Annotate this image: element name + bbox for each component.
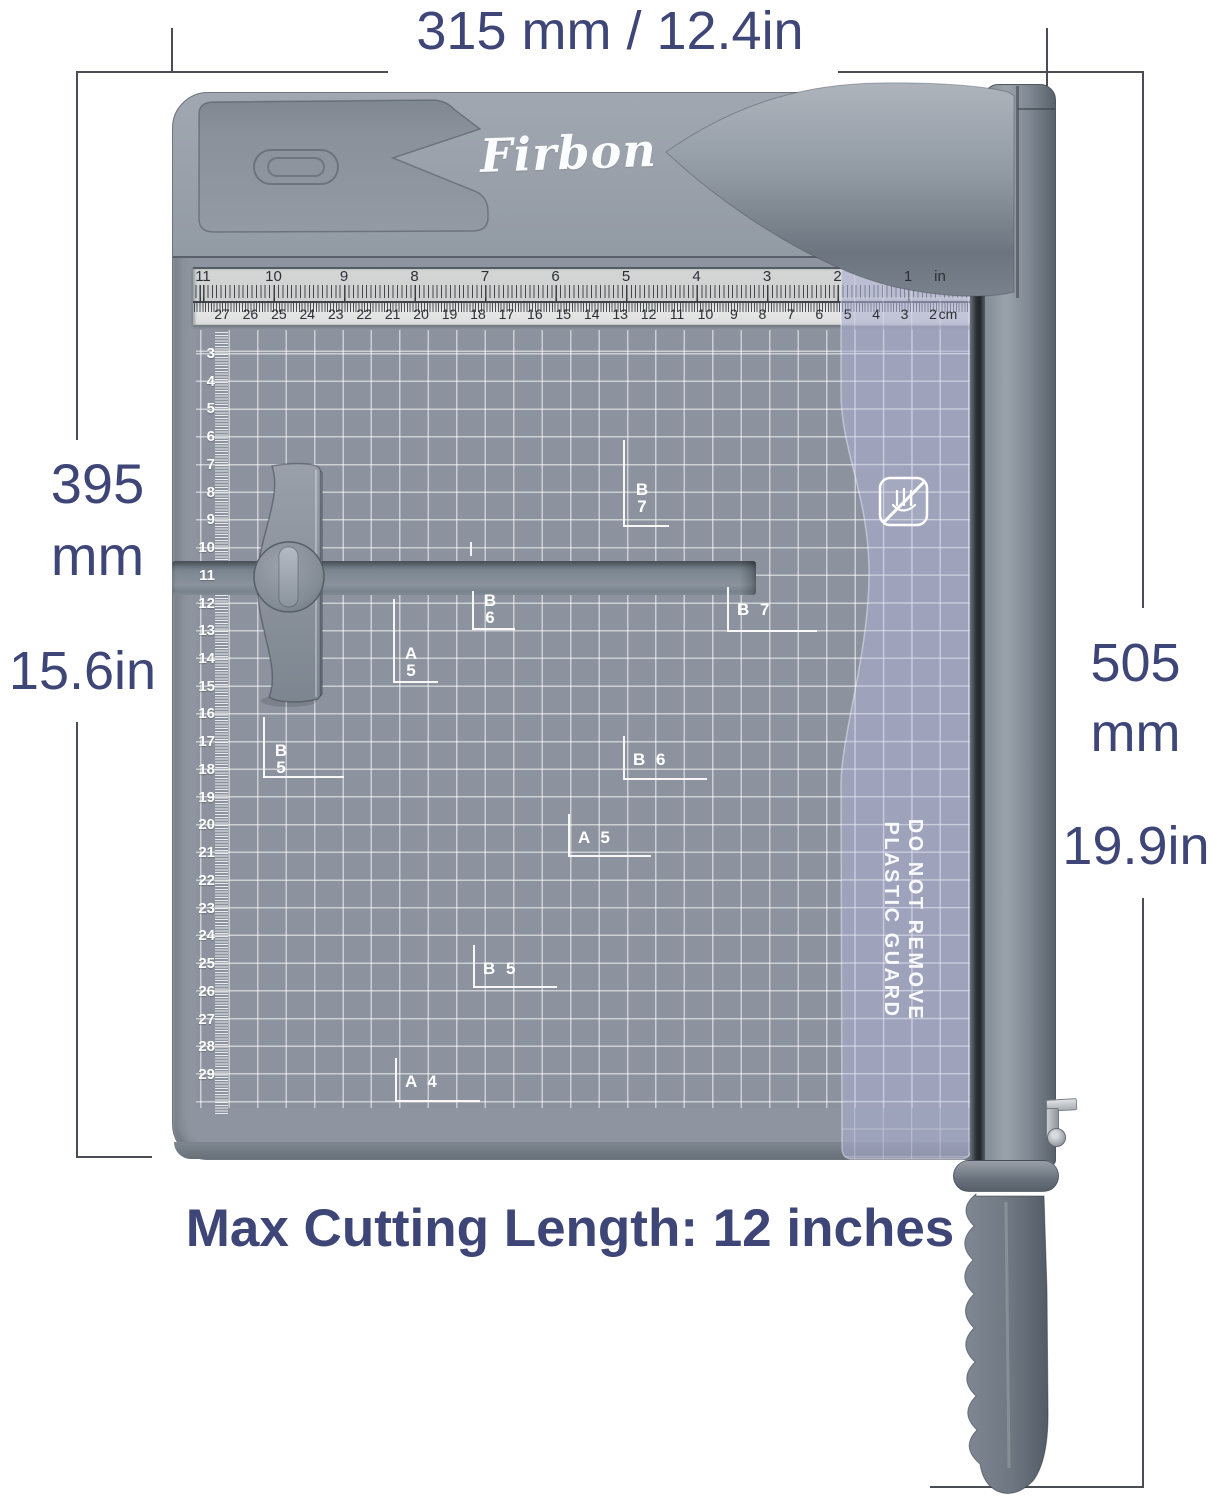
- ruler-inch-unit: in: [929, 268, 951, 285]
- side-ruler-number: 13: [193, 622, 215, 639]
- paper-mark-hline: [568, 855, 651, 857]
- paper-mark-vline: [472, 591, 474, 630]
- side-ruler-number: 8: [193, 484, 215, 501]
- paper-mark-hline: [623, 778, 707, 780]
- ruler-cm-number: 4: [865, 306, 887, 322]
- paper-size-label-text: B 6: [633, 751, 668, 768]
- side-ruler-number: 19: [193, 789, 215, 806]
- paper-size-label-b5-mid: B 5: [483, 960, 518, 977]
- paper-size-label-a5-mid: A 5: [578, 829, 613, 846]
- paper-size-label-text: B: [631, 481, 653, 498]
- ruler-inch-number: 9: [333, 268, 355, 285]
- side-ruler-number: 15: [193, 678, 215, 695]
- guard-warning-line-1: DO NOT REMOVE: [903, 685, 927, 1155]
- ruler-cm-number: 22: [353, 306, 375, 322]
- paper-size-label-text: 6: [479, 609, 501, 626]
- ruler-cm-number: 23: [325, 306, 347, 322]
- side-ruler-number: 23: [193, 900, 215, 917]
- paper-mark-vline: [263, 717, 265, 778]
- ruler-cm-number: 5: [837, 306, 859, 322]
- ruler-cm-number: 15: [552, 306, 574, 322]
- side-ruler-number: 25: [193, 955, 215, 972]
- paper-size-label-b6-mid: B 6: [633, 751, 668, 768]
- dimension-line-right-lower: [1142, 898, 1144, 1488]
- paper-mark-vline: [623, 440, 625, 525]
- ruler-inch-number: 8: [404, 268, 426, 285]
- paper-size-label-text: A 4: [405, 1073, 440, 1090]
- left-height-mm-label: 395 mm: [15, 448, 180, 592]
- dimension-line-top-left-segment: [76, 71, 388, 73]
- guard-warning-text: DO NOT REMOVE PLASTIC GUARD: [879, 685, 927, 1155]
- dimension-foot-left: [76, 1156, 152, 1158]
- side-ruler-number: 17: [193, 733, 215, 750]
- side-ruler-number: 18: [193, 761, 215, 778]
- ruler-cm-number: 17: [495, 306, 517, 322]
- paper-mark-hline: [263, 776, 344, 778]
- ruler-cm-number: 6: [808, 306, 830, 322]
- paper-size-label-text: 7: [631, 498, 653, 515]
- no-touch-warning-icon: [880, 478, 927, 525]
- paper-size-label-text: B: [479, 592, 501, 609]
- side-ruler-number: 26: [193, 983, 215, 1000]
- ruler-cm-number: 26: [239, 306, 261, 322]
- paper-mark-vline: [727, 587, 729, 632]
- ruler-inch-number: 7: [474, 268, 496, 285]
- ruler-cm-number: 27: [211, 306, 233, 322]
- left-height-in-label: 15.6in: [0, 640, 165, 702]
- side-ruler-number: 16: [193, 705, 215, 722]
- paper-mark-hline: [395, 1100, 480, 1102]
- ruler-cm-number: 8: [751, 306, 773, 322]
- dimension-line-right-upper: [1142, 71, 1144, 608]
- ruler-cm-number: 21: [382, 306, 404, 322]
- side-ruler-number: 6: [193, 428, 215, 445]
- paper-trimmer-product-figure: Firbon: [0, 0, 1217, 1500]
- right-height-mm-unit: mm: [1058, 698, 1213, 768]
- ruler-cm-unit: cm: [937, 306, 959, 322]
- paper-mark-hline: [472, 628, 515, 630]
- ruler-inch-number: 2: [827, 268, 849, 285]
- ruler-inch-number: 10: [263, 268, 285, 285]
- paper-size-label-a4-mid: A 4: [405, 1073, 440, 1090]
- side-ruler-number: 10: [193, 539, 215, 556]
- paper-size-label-text: B 7: [737, 601, 772, 618]
- paper-size-label-b7-right: B 7: [737, 601, 772, 618]
- storage-tray: [192, 94, 497, 239]
- paper-guide-knob: [240, 455, 340, 715]
- ruler-cm-number: 13: [609, 306, 631, 322]
- dimension-line-top-right-segment: [838, 71, 1144, 73]
- side-ruler-number: 22: [193, 872, 215, 889]
- dimension-line-left-upper: [76, 71, 78, 440]
- paper-size-label-b7-stacked: B7: [631, 481, 653, 515]
- side-ruler-number: 4: [193, 373, 215, 390]
- paper-size-label-a5-stacked: A5: [400, 645, 422, 679]
- side-ruler-number: 9: [193, 511, 215, 528]
- ruler-cm-number: 3: [894, 306, 916, 322]
- ruler-cm-number: 18: [467, 306, 489, 322]
- paper-size-label-text: A 5: [578, 829, 613, 846]
- side-ruler-number: 29: [193, 1066, 215, 1083]
- side-ruler-ticks: [215, 332, 228, 1115]
- paper-mark-hline: [473, 986, 557, 988]
- blade-latch-screw: [1047, 1128, 1066, 1147]
- ruler-inch-number: 11: [192, 268, 214, 285]
- paper-size-label-text: B 5: [483, 960, 518, 977]
- paper-size-label-text: 5: [270, 759, 292, 776]
- side-ruler-number: 28: [193, 1038, 215, 1055]
- side-ruler-number: 3: [193, 345, 215, 362]
- right-height-in-label: 19.9in: [1055, 815, 1217, 877]
- ruler-inch-number: 3: [756, 268, 778, 285]
- alignment-tick: [470, 542, 472, 556]
- side-ruler-number: 5: [193, 400, 215, 417]
- top-width-label: 315 mm / 12.4in: [330, 0, 890, 62]
- paper-mark-vline: [568, 814, 570, 857]
- ruler-cm-number: 10: [694, 306, 716, 322]
- side-ruler-number: 11: [193, 567, 215, 584]
- side-ruler-number: 21: [193, 844, 215, 861]
- paper-mark-vline: [623, 736, 625, 780]
- right-height-mm-label: 505 mm: [1058, 628, 1213, 768]
- brand-logo: Firbon: [479, 123, 651, 183]
- paper-mark-vline: [473, 945, 475, 988]
- ruler-cm-number: 25: [268, 306, 290, 322]
- dimension-line-left-lower: [76, 722, 78, 1158]
- right-height-mm-value: 505: [1058, 628, 1213, 698]
- side-ruler-number: 24: [193, 927, 215, 944]
- ruler-cm-number: 9: [723, 306, 745, 322]
- paper-size-label-b5-stacked: B5: [270, 742, 292, 776]
- paper-mark-vline: [395, 1058, 397, 1102]
- left-height-mm-value: 395: [15, 448, 180, 520]
- side-ruler-number: 20: [193, 816, 215, 833]
- dimension-tick-top-left: [171, 28, 173, 73]
- ruler-inch-number: 1: [897, 268, 919, 285]
- ruler-inch-number: 6: [545, 268, 567, 285]
- paper-size-label-b6-stacked: B6: [479, 592, 501, 626]
- paper-clamp: [655, 75, 1065, 310]
- ruler-cm-number: 7: [780, 306, 802, 322]
- ruler-cm-number: 11: [666, 306, 688, 322]
- ruler-inch-number: 4: [686, 268, 708, 285]
- paper-mark-hline: [623, 525, 669, 527]
- side-ruler-number: 27: [193, 1011, 215, 1028]
- paper-size-label-text: 5: [400, 662, 422, 679]
- guard-warning-line-2: PLASTIC GUARD: [879, 685, 903, 1155]
- paper-size-label-text: B: [270, 742, 292, 759]
- handle-flange: [953, 1160, 1059, 1192]
- side-ruler-number: 12: [193, 595, 215, 612]
- paper-size-label-text: A: [400, 645, 422, 662]
- paper-mark-vline: [393, 599, 395, 683]
- paper-mark-hline: [393, 681, 438, 683]
- ruler-cm-number: 14: [581, 306, 603, 322]
- ruler-inch-number: 5: [615, 268, 637, 285]
- side-ruler-number: 14: [193, 650, 215, 667]
- knob-grip: [279, 547, 298, 607]
- ruler-cm-number: 20: [410, 306, 432, 322]
- ruler-cm-number: 24: [296, 306, 318, 322]
- max-cutting-length-caption: Max Cutting Length: 12 inches: [140, 1198, 1000, 1259]
- ruler-cm-number: 19: [439, 306, 461, 322]
- left-height-mm-unit: mm: [15, 520, 180, 592]
- ruler-cm-number: 12: [638, 306, 660, 322]
- paper-mark-hline: [727, 630, 817, 632]
- side-ruler-number: 7: [193, 456, 215, 473]
- ruler-cm-number: 16: [524, 306, 546, 322]
